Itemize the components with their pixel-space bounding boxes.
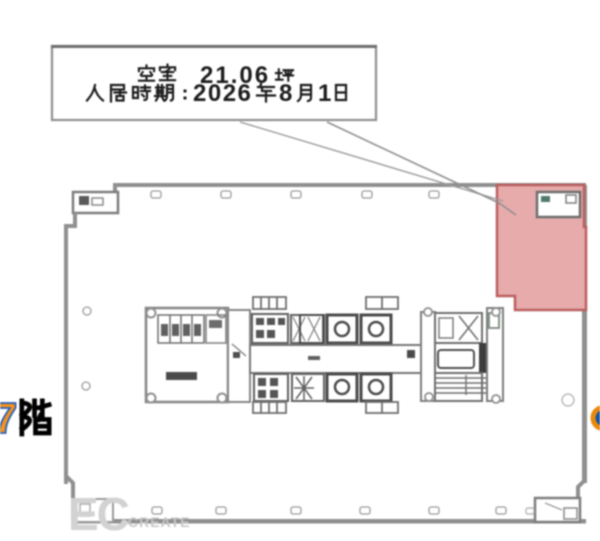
svg-text:8: 8 [279, 80, 292, 107]
svg-text:1: 1 [318, 80, 331, 107]
svg-text:7: 7 [0, 394, 17, 443]
svg-text:2026: 2026 [193, 80, 252, 107]
